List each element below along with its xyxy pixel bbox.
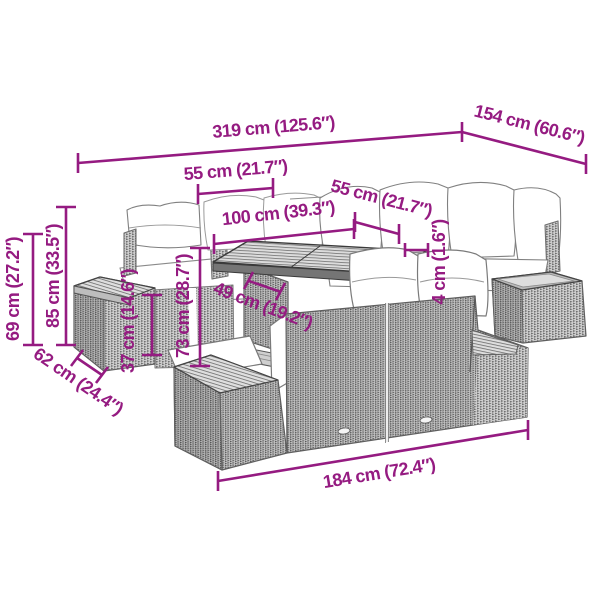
svg-text:37 cm (14.6″): 37 cm (14.6″) [118,268,138,372]
svg-text:4 cm (1.6″): 4 cm (1.6″) [429,219,449,305]
svg-text:69 cm (27.2″): 69 cm (27.2″) [3,236,23,340]
svg-text:85 cm (33.5″): 85 cm (33.5″) [43,223,63,327]
svg-text:73 cm (28.7″): 73 cm (28.7″) [173,253,193,357]
